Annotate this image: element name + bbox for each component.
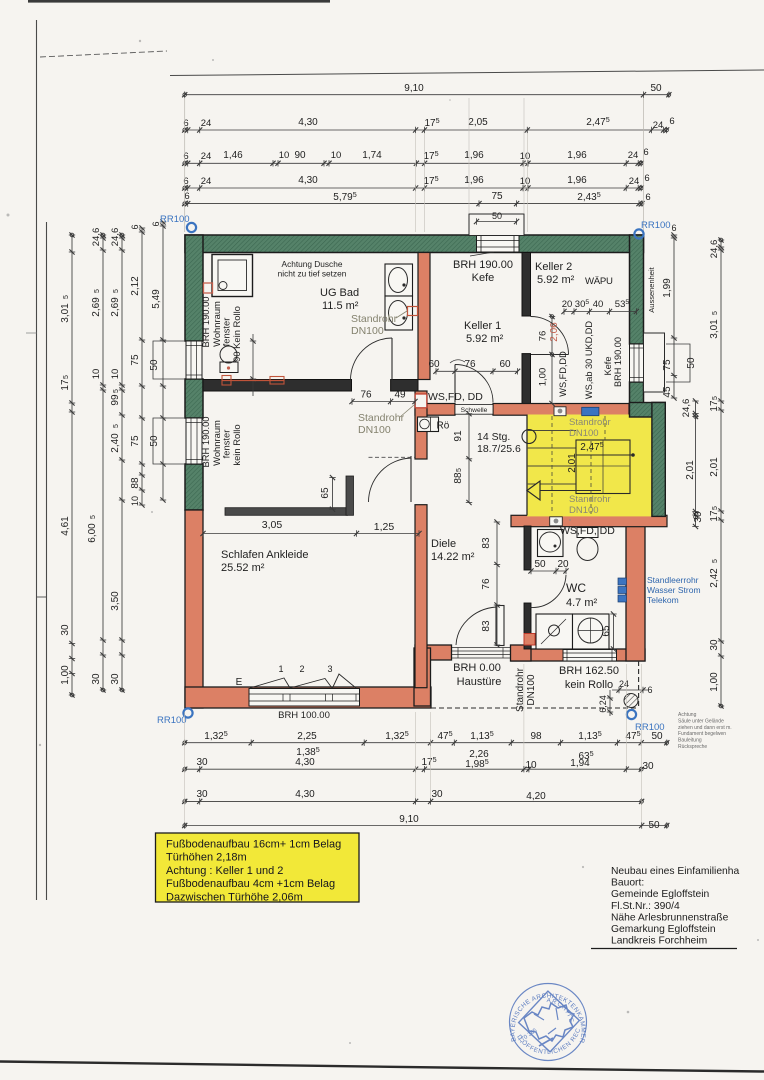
svg-text:5: 5 xyxy=(456,468,463,472)
svg-text:6: 6 xyxy=(671,223,676,233)
svg-text:1,96: 1,96 xyxy=(567,150,587,161)
svg-text:kein Rollo: kein Rollo xyxy=(565,679,613,691)
svg-text:WS,FD, DD: WS,FD, DD xyxy=(428,391,483,403)
svg-text:24: 24 xyxy=(629,176,640,187)
svg-text:6: 6 xyxy=(644,173,649,184)
svg-text:24,6: 24,6 xyxy=(110,228,121,247)
svg-text:Keller 2: Keller 2 xyxy=(535,261,572,273)
svg-text:5: 5 xyxy=(113,389,120,393)
svg-text:5,49: 5,49 xyxy=(151,289,162,309)
svg-text:WS,FD,DD: WS,FD,DD xyxy=(558,351,568,397)
svg-text:50: 50 xyxy=(149,359,160,371)
svg-text:DN100: DN100 xyxy=(351,325,384,337)
svg-text:Standrohr: Standrohr xyxy=(351,313,398,325)
svg-text:1,96: 1,96 xyxy=(464,175,484,186)
svg-text:10: 10 xyxy=(279,150,290,161)
svg-text:14.22 m²: 14.22 m² xyxy=(431,551,475,563)
svg-text:45: 45 xyxy=(662,386,673,398)
svg-text:2,40: 2,40 xyxy=(110,433,121,453)
svg-text:65: 65 xyxy=(320,487,331,499)
svg-text:88: 88 xyxy=(130,477,141,489)
svg-text:30: 30 xyxy=(60,624,71,636)
svg-text:50: 50 xyxy=(651,731,663,742)
svg-text:6: 6 xyxy=(130,224,140,229)
svg-text:6: 6 xyxy=(183,176,188,187)
svg-text:24: 24 xyxy=(628,150,639,161)
svg-text:Kefe: Kefe xyxy=(603,357,613,376)
svg-text:1: 1 xyxy=(278,664,283,674)
svg-text:76: 76 xyxy=(360,390,372,401)
svg-text:Fußbodenaufbau 4cm +1cm Belag: Fußbodenaufbau 4cm +1cm Belag xyxy=(166,878,335,890)
svg-text:Achtung : Keller 1 und 2: Achtung : Keller 1 und 2 xyxy=(166,865,283,877)
svg-text:Rückspreche: Rückspreche xyxy=(678,744,707,750)
svg-text:1,00: 1,00 xyxy=(538,368,549,387)
svg-text:2,05: 2,05 xyxy=(468,117,488,128)
svg-text:14 Stg.: 14 Stg. xyxy=(477,431,510,443)
svg-text:24: 24 xyxy=(653,120,664,131)
svg-text:24: 24 xyxy=(201,151,212,162)
svg-text:5: 5 xyxy=(113,424,120,428)
svg-text:Keller 1: Keller 1 xyxy=(464,320,501,332)
svg-text:88: 88 xyxy=(453,472,464,484)
svg-text:DN100: DN100 xyxy=(569,428,599,439)
svg-text:5.92 m²: 5.92 m² xyxy=(466,333,504,345)
svg-text:Standrohr: Standrohr xyxy=(569,494,611,505)
svg-text:24,6: 24,6 xyxy=(709,240,720,259)
svg-text:5.92 m²: 5.92 m² xyxy=(537,274,575,286)
svg-text:BRH 162.50: BRH 162.50 xyxy=(559,665,619,677)
svg-text:6: 6 xyxy=(643,147,648,158)
svg-text:3: 3 xyxy=(327,664,332,674)
svg-text:Fundament begelwen: Fundament begelwen xyxy=(678,731,726,737)
svg-text:Haustüre: Haustüre xyxy=(457,676,502,688)
svg-text:75: 75 xyxy=(130,354,141,366)
svg-text:3,50: 3,50 xyxy=(110,591,121,611)
svg-text:Bauleitung: Bauleitung xyxy=(678,738,702,744)
svg-text:75: 75 xyxy=(491,191,503,202)
svg-text:2,69: 2,69 xyxy=(91,297,102,317)
svg-text:50: 50 xyxy=(149,435,160,447)
svg-text:Gemeinde Egloffstein: Gemeinde Egloffstein xyxy=(611,889,710,900)
svg-text:1,00: 1,00 xyxy=(60,665,71,685)
svg-text:10: 10 xyxy=(520,151,531,162)
svg-text:30: 30 xyxy=(196,757,208,768)
svg-text:5: 5 xyxy=(113,289,120,293)
svg-text:24,6: 24,6 xyxy=(681,399,692,418)
svg-text:24: 24 xyxy=(201,176,212,187)
svg-text:Gemarkung Egloffstein: Gemarkung Egloffstein xyxy=(611,924,716,935)
svg-text:10: 10 xyxy=(110,369,121,380)
svg-text:18.7/25.6: 18.7/25.6 xyxy=(477,443,521,455)
svg-text:1,46: 1,46 xyxy=(223,150,243,161)
svg-text:6: 6 xyxy=(183,151,188,162)
svg-text:30: 30 xyxy=(709,639,720,651)
svg-text:Achtung: Achtung xyxy=(678,712,697,718)
svg-text:UG Bad: UG Bad xyxy=(320,287,359,299)
svg-text:4,30: 4,30 xyxy=(298,175,318,186)
svg-text:Wasser Strom: Wasser Strom xyxy=(647,585,701,595)
svg-text:3,01: 3,01 xyxy=(60,303,71,323)
svg-text:76: 76 xyxy=(538,331,549,342)
svg-text:4,61: 4,61 xyxy=(60,516,71,536)
svg-text:6,00: 6,00 xyxy=(87,523,98,543)
svg-text:2,01: 2,01 xyxy=(685,460,696,480)
svg-text:20: 20 xyxy=(562,299,573,310)
svg-text:4,30: 4,30 xyxy=(295,789,315,800)
svg-text:24: 24 xyxy=(201,118,212,129)
svg-text:1,96: 1,96 xyxy=(567,175,587,186)
svg-text:2,42: 2,42 xyxy=(709,568,720,588)
svg-text:5: 5 xyxy=(712,396,719,400)
svg-text:WS,ab 30 UKD,DD: WS,ab 30 UKD,DD xyxy=(584,321,594,399)
svg-text:Standrohr: Standrohr xyxy=(358,412,405,424)
svg-text:Nähe Arlesbrunnenstraße: Nähe Arlesbrunnenstraße xyxy=(611,912,729,923)
svg-text:76: 76 xyxy=(464,359,476,370)
svg-text:60: 60 xyxy=(499,359,511,370)
svg-text:50: 50 xyxy=(650,83,662,94)
svg-text:40: 40 xyxy=(593,299,604,310)
svg-text:75: 75 xyxy=(662,359,673,371)
svg-text:2,12: 2,12 xyxy=(130,276,141,296)
svg-text:BRH 190.00: BRH 190.00 xyxy=(453,259,513,271)
svg-text:fenster: fenster xyxy=(221,430,232,459)
svg-text:Bauort:: Bauort: xyxy=(611,878,644,889)
svg-text:ziehen und dann erst m.: ziehen und dann erst m. xyxy=(678,725,732,731)
svg-text:Telekom: Telekom xyxy=(647,595,679,605)
svg-text:83: 83 xyxy=(481,537,492,549)
svg-text:6: 6 xyxy=(183,118,188,129)
svg-text:1,94: 1,94 xyxy=(570,758,590,769)
svg-text:WS,FD, DD: WS,FD, DD xyxy=(560,525,615,537)
svg-text:6: 6 xyxy=(184,191,189,202)
svg-text:4,30: 4,30 xyxy=(295,757,315,768)
svg-text:9,10: 9,10 xyxy=(399,814,419,825)
svg-text:2,01: 2,01 xyxy=(567,453,578,473)
svg-text:1,96: 1,96 xyxy=(464,150,484,161)
svg-text:6: 6 xyxy=(647,685,652,695)
svg-text:30: 30 xyxy=(642,761,654,772)
svg-text:Fußbodenaufbau 16cm+ 1cm Belag: Fußbodenaufbau 16cm+ 1cm Belag xyxy=(166,839,341,851)
svg-text:5: 5 xyxy=(63,375,70,379)
svg-text:5: 5 xyxy=(90,515,97,519)
svg-text:4,30: 4,30 xyxy=(298,117,318,128)
svg-text:Achtung Dusche: Achtung Dusche xyxy=(282,259,343,269)
svg-text:17: 17 xyxy=(709,510,720,522)
svg-text:5: 5 xyxy=(712,311,719,315)
svg-text:Kefe: Kefe xyxy=(472,272,495,284)
svg-text:Landkreis Forchheim: Landkreis Forchheim xyxy=(611,936,707,947)
svg-text:1,99: 1,99 xyxy=(662,278,673,298)
svg-text:9,10: 9,10 xyxy=(404,83,424,94)
svg-text:10: 10 xyxy=(525,760,537,771)
svg-text:65: 65 xyxy=(601,625,612,637)
svg-text:BRH 100.00: BRH 100.00 xyxy=(278,710,330,721)
svg-text:1,25: 1,25 xyxy=(374,521,395,533)
svg-text:Diele: Diele xyxy=(431,538,456,550)
svg-text:3,05: 3,05 xyxy=(262,519,283,531)
svg-text:E: E xyxy=(236,677,243,688)
svg-text:DN100: DN100 xyxy=(358,424,391,436)
svg-text:10: 10 xyxy=(91,369,102,380)
svg-text:BRH 190.00: BRH 190.00 xyxy=(200,296,211,347)
svg-text:75: 75 xyxy=(130,435,141,447)
svg-text:BRH 0.00: BRH 0.00 xyxy=(453,662,501,674)
svg-text:30: 30 xyxy=(431,789,443,800)
svg-text:17: 17 xyxy=(60,379,71,391)
svg-text:Säule unter Gelände: Säule unter Gelände xyxy=(678,718,724,724)
svg-text:49: 49 xyxy=(394,390,406,401)
svg-text:Neubau eines Einfamilienha: Neubau eines Einfamilienha xyxy=(611,866,739,877)
svg-text:Aussenenheit: Aussenenheit xyxy=(647,266,656,312)
svg-text:RR100: RR100 xyxy=(160,214,190,225)
svg-text:RR100: RR100 xyxy=(157,715,187,726)
svg-text:50: 50 xyxy=(534,559,546,570)
svg-text:DN100: DN100 xyxy=(526,674,537,706)
svg-text:50: 50 xyxy=(686,357,697,369)
svg-text:3,01: 3,01 xyxy=(709,319,720,339)
svg-text:4,20: 4,20 xyxy=(526,791,546,802)
svg-text:24,6: 24,6 xyxy=(91,228,102,247)
svg-text:60: 60 xyxy=(428,359,440,370)
svg-text:99: 99 xyxy=(110,394,121,406)
svg-text:30: 30 xyxy=(693,511,704,523)
svg-text:WÄPU: WÄPU xyxy=(585,276,613,287)
svg-text:WC: WC xyxy=(566,581,586,595)
svg-text:Standrohr: Standrohr xyxy=(569,417,611,428)
svg-text:Dazwischen Türhöhe 2,06m: Dazwischen Türhöhe 2,06m xyxy=(166,891,303,903)
svg-text:20: 20 xyxy=(557,559,569,570)
svg-text:DN100: DN100 xyxy=(569,505,599,516)
svg-text:2,25: 2,25 xyxy=(297,731,317,742)
svg-text:91: 91 xyxy=(453,430,464,442)
svg-text:2: 2 xyxy=(299,664,304,674)
svg-text:17: 17 xyxy=(709,400,720,412)
svg-text:5: 5 xyxy=(94,289,101,293)
svg-text:nicht zu tief setzen: nicht zu tief setzen xyxy=(278,269,347,279)
svg-text:5: 5 xyxy=(712,506,719,510)
svg-text:10: 10 xyxy=(520,176,531,187)
svg-text:Türhöhen 2,18m: Türhöhen 2,18m xyxy=(166,852,247,864)
svg-text:10: 10 xyxy=(331,150,342,161)
svg-text:RR100: RR100 xyxy=(641,220,671,231)
svg-text:6: 6 xyxy=(669,116,674,127)
svg-text:Schwelle: Schwelle xyxy=(461,407,488,414)
svg-text:30: 30 xyxy=(110,673,121,685)
svg-text:90: 90 xyxy=(294,150,306,161)
svg-text:6,24: 6,24 xyxy=(598,695,608,713)
svg-text:25.52 m²: 25.52 m² xyxy=(221,562,265,574)
svg-text:Standrohr: Standrohr xyxy=(515,667,526,712)
svg-text:11.5 m²: 11.5 m² xyxy=(322,300,359,312)
svg-text:76: 76 xyxy=(481,578,492,590)
svg-text:10: 10 xyxy=(130,496,140,506)
svg-text:4.7 m²: 4.7 m² xyxy=(566,597,598,609)
svg-text:30: 30 xyxy=(196,789,208,800)
svg-text:1,00: 1,00 xyxy=(709,672,720,692)
svg-text:24: 24 xyxy=(619,679,629,689)
svg-text:2,69: 2,69 xyxy=(110,297,121,317)
svg-text:30: 30 xyxy=(91,673,102,685)
svg-text:BRH 190.00: BRH 190.00 xyxy=(613,337,623,387)
svg-text:Rö: Rö xyxy=(437,421,450,432)
svg-text:83: 83 xyxy=(481,620,492,632)
svg-text:2,01: 2,01 xyxy=(709,457,720,477)
svg-text:50: 50 xyxy=(648,820,660,831)
svg-text:5: 5 xyxy=(63,295,70,299)
svg-text:fenster: fenster xyxy=(221,318,232,347)
svg-text:90 Kein Rollo: 90 Kein Rollo xyxy=(231,306,242,362)
svg-text:kein Rollo: kein Rollo xyxy=(231,424,242,465)
svg-text:Fl.St.Nr.: 390/4: Fl.St.Nr.: 390/4 xyxy=(611,901,680,912)
svg-text:5: 5 xyxy=(712,559,719,563)
svg-text:Standleerrohr: Standleerrohr xyxy=(647,575,699,585)
svg-text:6: 6 xyxy=(645,192,650,203)
svg-text:2,06: 2,06 xyxy=(549,322,560,342)
svg-text:98: 98 xyxy=(530,731,542,742)
svg-text:1,74: 1,74 xyxy=(362,150,382,161)
svg-text:BRH 190.00: BRH 190.00 xyxy=(200,416,211,467)
svg-text:50: 50 xyxy=(492,211,502,221)
svg-text:Schlafen Ankleide: Schlafen Ankleide xyxy=(221,549,308,561)
